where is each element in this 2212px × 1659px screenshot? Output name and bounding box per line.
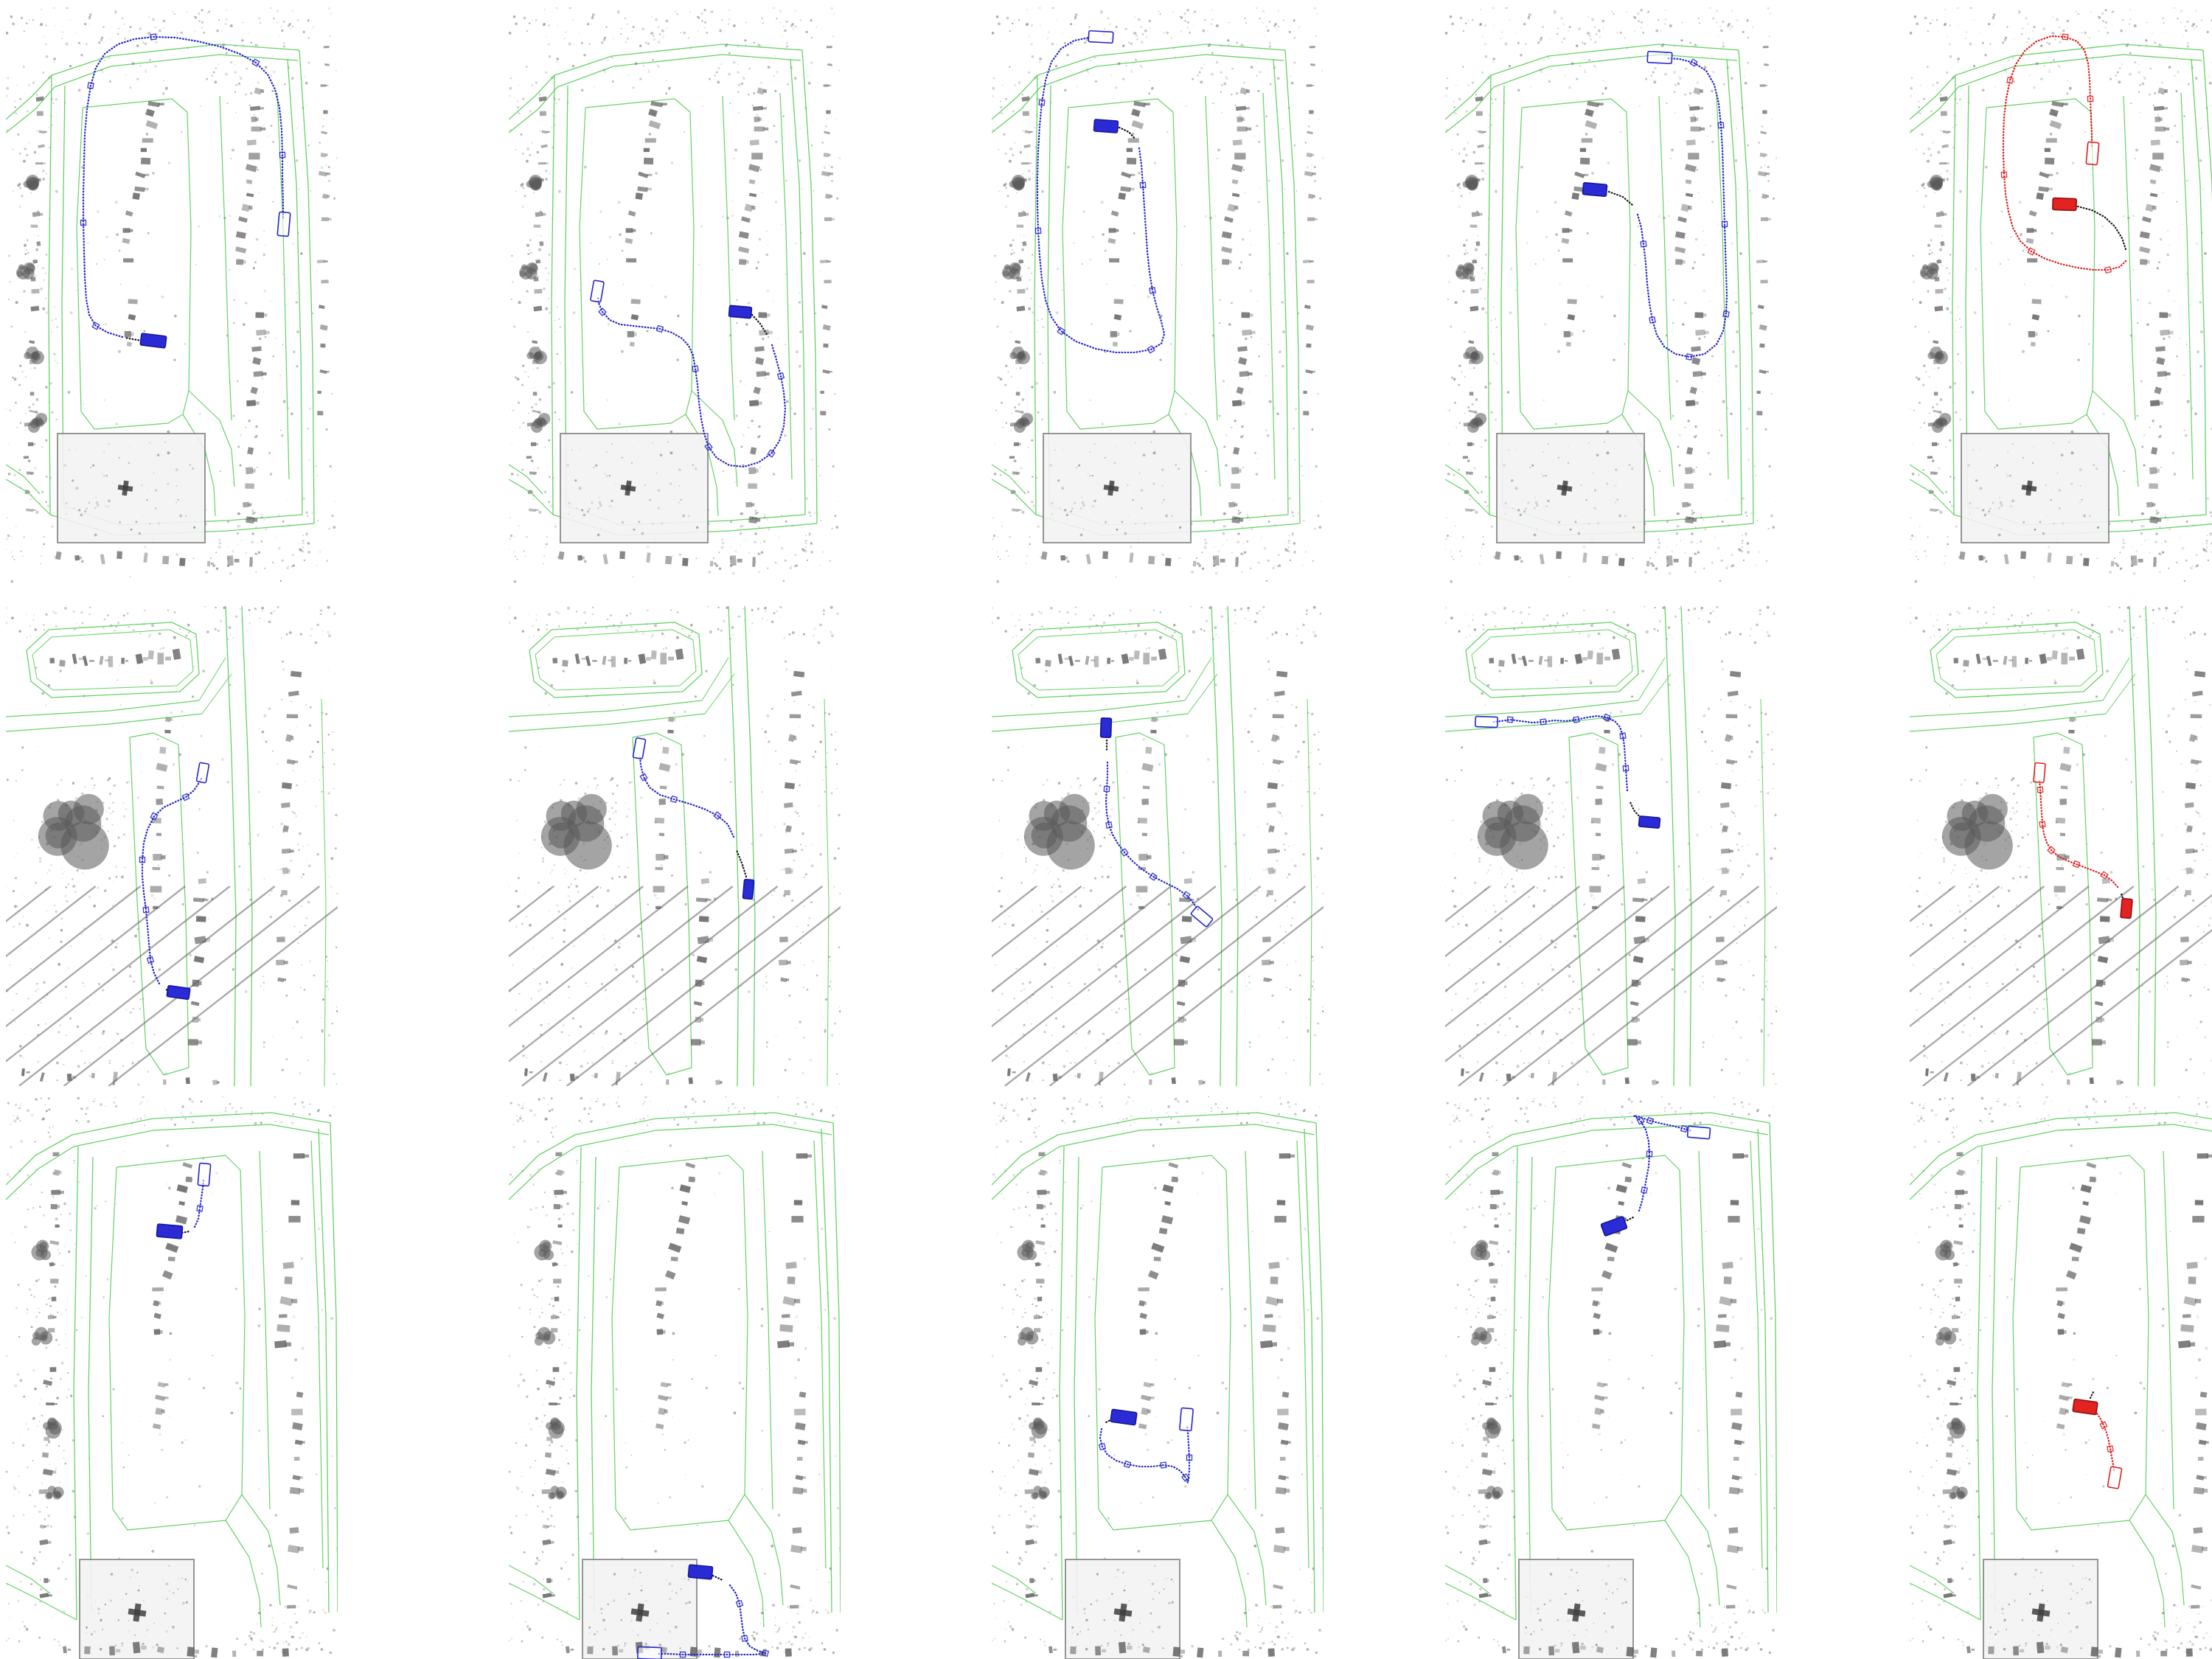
map-noise-dot	[742, 434, 745, 437]
map-car-blob	[1691, 357, 1700, 365]
map-car-blob	[1761, 218, 1768, 221]
map-noise-dot	[1255, 7, 1257, 9]
map-noise-dot	[1704, 336, 1705, 338]
map-noise-dot	[529, 249, 530, 251]
map-noise-dot	[1613, 13, 1615, 15]
map-noise-dot	[1941, 235, 1942, 236]
map-noise-dot	[1318, 119, 1320, 120]
map-noise-dot	[1254, 452, 1256, 454]
map-noise-dot	[1688, 517, 1691, 519]
map-noise-dot	[1703, 254, 1705, 256]
map-noise-dot	[6, 549, 7, 550]
map-noise-dot	[49, 966, 49, 967]
map-noise-dot	[1292, 105, 1293, 106]
map-noise-dot	[249, 614, 251, 616]
map-car-blob	[824, 131, 830, 135]
map-car-blob	[1236, 386, 1243, 394]
map-car-blob	[1023, 111, 1029, 116]
map-car-blob	[42, 163, 46, 164]
map-noise-dot	[206, 78, 208, 80]
map-noise-dot	[2157, 512, 2159, 513]
map-car-blob	[44, 131, 47, 133]
map-noise-dot	[32, 82, 35, 84]
map-noise-dot	[26, 924, 29, 927]
map-noise-dot	[1495, 389, 1495, 389]
map-car-blob	[1472, 509, 1475, 511]
map-noise-dot	[178, 499, 179, 501]
map-car-blob	[2115, 563, 2118, 564]
map-noise-dot	[538, 276, 540, 277]
map-noise-dot	[1077, 86, 1078, 88]
map-noise-dot	[35, 248, 38, 251]
map-noise-dot	[262, 731, 265, 734]
map-noise-dot	[1951, 57, 1952, 58]
map-noise-dot	[64, 871, 65, 872]
map-car-blob	[824, 84, 829, 87]
map-noise-dot	[237, 380, 239, 383]
map-noise-dot	[1674, 428, 1675, 429]
map-noise-dot	[60, 780, 61, 781]
map-noise-dot	[1958, 25, 1959, 27]
map-car-blob	[1312, 85, 1315, 86]
map-noise-dot	[32, 403, 35, 406]
map-noise-dot	[2200, 128, 2202, 129]
map-noise-dot	[1625, 378, 1626, 378]
map-noise-dot	[2089, 38, 2090, 39]
map-noise-dot	[118, 837, 120, 839]
map-noise-dot	[548, 24, 549, 26]
map-noise-dot	[128, 782, 130, 783]
map-noise-dot	[192, 557, 194, 559]
map-noise-dot	[243, 323, 246, 326]
map-noise-dot	[1493, 25, 1495, 27]
map-car-blob	[1470, 289, 1478, 293]
map-noise-dot	[1604, 442, 1605, 443]
map-car-blob	[749, 179, 756, 184]
map-noise-dot	[13, 820, 15, 821]
map-noise-dot	[172, 636, 173, 637]
map-noise-dot	[1231, 302, 1234, 305]
map-noise-dot	[61, 38, 63, 39]
map-noise-dot	[80, 611, 83, 613]
map-noise-dot	[2057, 473, 2059, 474]
map-noise-dot	[1451, 23, 1454, 26]
map-car-blob	[74, 555, 80, 561]
map-noise-dot	[2139, 428, 2140, 429]
map-car-blob	[1936, 212, 1944, 218]
map-noise-dot	[1458, 183, 1461, 186]
map-noise-dot	[710, 13, 711, 13]
map-noise-dot	[218, 546, 221, 549]
map-noise-dot	[1722, 521, 1724, 523]
map-noise-dot	[2135, 149, 2138, 152]
map-noise-dot	[328, 734, 330, 736]
map-noise-dot	[1558, 521, 1560, 524]
map-noise-dot	[2168, 568, 2169, 569]
map-noise-dot	[2042, 532, 2045, 535]
map-car-blob	[737, 559, 742, 563]
map-noise-dot	[1310, 118, 1311, 119]
map-noise-dot	[11, 536, 13, 538]
map-noise-dot	[709, 422, 709, 423]
map-car-blob	[1131, 108, 1141, 116]
map-noise-dot	[1464, 376, 1466, 378]
map-noise-dot	[161, 296, 164, 299]
map-noise-dot	[1754, 465, 1756, 467]
map-noise-dot	[1593, 65, 1595, 66]
map-noise-dot	[2157, 511, 2157, 512]
map-car-blob	[1148, 556, 1155, 565]
map-noise-dot	[55, 98, 58, 100]
map-noise-dot	[1631, 467, 1633, 470]
map-noise-dot	[1543, 259, 1545, 260]
map-noise-dot	[330, 886, 332, 888]
map-noise-dot	[1249, 290, 1252, 293]
map-noise-dot	[2135, 158, 2136, 159]
map-noise-dot	[1473, 467, 1476, 470]
map-noise-dot	[328, 634, 331, 637]
map-noise-dot	[30, 968, 32, 970]
map-noise-dot	[1029, 36, 1029, 37]
map-noise-dot	[304, 560, 305, 561]
map-noise-dot	[1240, 261, 1242, 263]
map-noise-dot	[60, 929, 63, 932]
map-noise-dot	[155, 41, 158, 44]
map-noise-dot	[1020, 151, 1022, 153]
map-noise-dot	[1090, 259, 1091, 260]
map-noise-dot	[1709, 301, 1710, 302]
map-noise-dot	[35, 882, 37, 884]
map-noise-dot	[1928, 252, 1929, 253]
map-car-blob	[1759, 369, 1766, 374]
map-noise-dot	[809, 105, 810, 106]
map-noise-dot	[1486, 57, 1487, 58]
map-noise-dot	[185, 515, 187, 518]
map-noise-dot	[280, 430, 282, 431]
map-noise-dot	[1576, 45, 1578, 47]
map-noise-dot	[142, 42, 144, 44]
map-car-blob	[1222, 259, 1229, 265]
map-noise-dot	[2174, 125, 2176, 127]
map-noise-dot	[234, 91, 236, 93]
map-noise-dot	[639, 45, 641, 47]
map-noise-dot	[1934, 192, 1935, 194]
map-car-blob	[1306, 344, 1311, 348]
map-car-blob	[31, 225, 38, 228]
map-noise-dot	[819, 565, 820, 566]
map-noise-dot	[133, 629, 135, 631]
map-noise-dot	[678, 502, 680, 504]
map-noise-dot	[1287, 549, 1290, 552]
map-noise-dot	[1691, 532, 1694, 535]
map-noise-dot	[1012, 239, 1015, 241]
map-noise-dot	[319, 552, 321, 553]
map-noise-dot	[280, 637, 282, 639]
map-noise-dot	[1001, 301, 1004, 304]
map-noise-dot	[805, 540, 807, 542]
map-noise-dot	[539, 173, 540, 175]
map-car-blob	[198, 1018, 201, 1022]
map-car-blob	[1562, 258, 1573, 262]
map-noise-dot	[1984, 54, 1986, 56]
map-noise-dot	[66, 7, 69, 9]
map-noise-dot	[1278, 554, 1280, 556]
map-noise-dot	[283, 42, 285, 44]
map-noise-dot	[58, 963, 60, 966]
map-noise-dot	[1581, 484, 1582, 486]
map-noise-dot	[14, 101, 15, 102]
map-noise-dot	[1021, 276, 1023, 277]
map-noise-dot	[1658, 539, 1660, 541]
map-car-blob	[1116, 333, 1120, 336]
panel-r1c4	[1445, 7, 1777, 586]
map-car-blob	[1764, 154, 1767, 156]
map-noise-dot	[1456, 153, 1457, 153]
map-noise-dot	[1187, 9, 1189, 11]
map-noise-dot	[74, 891, 77, 893]
map-noise-dot	[777, 563, 778, 564]
map-noise-dot	[555, 7, 558, 9]
map-noise-dot	[2103, 165, 2104, 166]
map-noise-dot	[1216, 24, 1219, 27]
map-car-blob	[635, 192, 643, 200]
map-car-blob	[145, 108, 155, 116]
map-noise-dot	[272, 355, 274, 358]
map-noise-dot	[198, 226, 199, 227]
lane-line	[242, 606, 252, 1086]
map-car-blob	[322, 194, 328, 199]
map-car-blob	[320, 344, 325, 348]
map-noise-dot	[781, 514, 783, 516]
map-noise-dot	[1282, 128, 1284, 129]
map-noise-dot	[10, 1019, 12, 1020]
map-car-blob	[821, 305, 828, 309]
map-noise-dot	[9, 964, 10, 966]
map-noise-dot	[2161, 169, 2163, 170]
map-car-blob	[1930, 471, 1938, 474]
map-noise-dot	[2060, 33, 2062, 35]
map-noise-dot	[56, 1062, 59, 1065]
map-noise-dot	[1216, 61, 1218, 63]
map-noise-dot	[2034, 26, 2036, 28]
map-noise-dot	[42, 547, 43, 548]
map-noise-dot	[1037, 331, 1038, 333]
map-noise-dot	[263, 290, 266, 293]
map-noise-dot	[1547, 500, 1550, 503]
map-noise-dot	[94, 785, 95, 786]
map-noise-dot	[310, 627, 313, 630]
map-noise-dot	[335, 847, 337, 849]
map-noise-dot	[779, 10, 782, 13]
map-noise-dot	[117, 1033, 119, 1034]
map-noise-dot	[79, 284, 80, 285]
map-noise-dot	[48, 869, 50, 872]
map-noise-dot	[2154, 424, 2154, 425]
map-noise-dot	[558, 360, 560, 361]
map-noise-dot	[588, 508, 591, 510]
map-noise-dot	[6, 95, 8, 97]
map-noise-dot	[167, 451, 170, 454]
map-car-blob	[290, 849, 294, 852]
map-car-blob	[1307, 218, 1315, 221]
map-tree-blob	[1463, 262, 1475, 274]
map-noise-dot	[1115, 447, 1116, 448]
map-noise-dot	[1197, 75, 1199, 77]
map-noise-dot	[246, 631, 248, 633]
map-noise-dot	[1236, 92, 1238, 94]
map-noise-dot	[1615, 502, 1616, 504]
map-car-blob	[1568, 314, 1576, 321]
map-car-blob	[1304, 171, 1313, 177]
map-noise-dot	[255, 425, 257, 428]
map-car-blob	[2026, 238, 2034, 244]
map-noise-dot	[2132, 215, 2135, 217]
map-car-blob	[30, 392, 35, 395]
map-noise-dot	[92, 465, 94, 467]
map-noise-dot	[1678, 525, 1680, 527]
map-noise-dot	[1207, 30, 1208, 32]
map-tree-blob	[1465, 177, 1478, 190]
map-noise-dot	[518, 112, 520, 114]
map-noise-dot	[741, 83, 743, 85]
map-noise-dot	[1154, 161, 1156, 164]
map-noise-dot	[1554, 201, 1557, 204]
map-car-blob	[545, 163, 549, 164]
map-noise-dot	[795, 564, 798, 567]
map-noise-dot	[220, 470, 221, 472]
map-noise-dot	[55, 419, 58, 421]
map-car-blob	[1238, 469, 1242, 473]
map-noise-dot	[1192, 422, 1192, 423]
map-noise-dot	[239, 525, 241, 527]
map-noise-dot	[599, 501, 602, 504]
map-noise-dot	[1217, 481, 1219, 483]
map-noise-dot	[767, 519, 768, 520]
map-noise-dot	[218, 215, 221, 218]
map-car-blob	[633, 333, 637, 336]
map-noise-dot	[1641, 9, 1643, 11]
map-noise-dot	[754, 540, 757, 543]
map-noise-dot	[245, 519, 246, 521]
map-car-blob	[2157, 518, 2161, 522]
map-noise-dot	[58, 1031, 60, 1033]
map-noise-dot	[225, 73, 228, 76]
map-noise-dot	[125, 1009, 127, 1010]
map-noise-dot	[1078, 465, 1080, 467]
map-noise-dot	[1679, 77, 1681, 80]
map-noise-dot	[1620, 131, 1621, 133]
map-noise-dot	[1102, 423, 1104, 425]
map-noise-dot	[7, 87, 10, 90]
map-noise-dot	[328, 180, 330, 182]
map-noise-dot	[1240, 436, 1243, 439]
map-noise-dot	[2079, 553, 2082, 556]
map-noise-dot	[1486, 496, 1488, 498]
map-car-blob	[1481, 163, 1485, 164]
map-noise-dot	[768, 336, 769, 338]
map-noise-dot	[136, 78, 139, 80]
map-noise-dot	[1939, 81, 1940, 82]
map-noise-dot	[80, 860, 81, 862]
map-noise-dot	[1273, 499, 1274, 501]
map-car-blob	[32, 443, 35, 445]
map-noise-dot	[1487, 127, 1489, 128]
map-car-blob	[1237, 346, 1248, 352]
map-noise-dot	[121, 875, 124, 878]
map-car-blob	[1688, 503, 1691, 506]
map-car-blob	[281, 890, 287, 895]
map-noise-dot	[1025, 503, 1026, 504]
lane-line	[1980, 99, 2095, 429]
map-noise-dot	[331, 393, 333, 394]
map-noise-dot	[1707, 136, 1708, 137]
map-car-blob	[161, 855, 165, 859]
map-noise-dot	[1181, 264, 1183, 265]
map-noise-dot	[1459, 422, 1461, 424]
map-noise-dot	[1918, 101, 1919, 102]
map-noise-dot	[272, 751, 274, 752]
map-noise-dot	[207, 13, 208, 13]
map-noise-dot	[1256, 63, 1257, 63]
map-noise-dot	[607, 60, 609, 62]
map-noise-dot	[1029, 465, 1031, 467]
map-noise-dot	[1067, 166, 1070, 169]
map-noise-dot	[1545, 475, 1547, 476]
map-car-blob	[823, 344, 828, 348]
map-noise-dot	[84, 510, 86, 512]
map-noise-dot	[297, 844, 299, 845]
map-noise-dot	[546, 465, 548, 467]
map-noise-dot	[1302, 565, 1303, 566]
map-noise-dot	[1196, 557, 1197, 559]
map-noise-dot	[734, 149, 737, 152]
map-noise-dot	[38, 989, 39, 990]
map-noise-dot	[1529, 467, 1531, 468]
map-noise-dot	[605, 473, 605, 474]
map-noise-dot	[1284, 543, 1284, 544]
map-noise-dot	[2142, 242, 2143, 243]
map-noise-dot	[2029, 74, 2031, 76]
map-noise-dot	[1946, 307, 1949, 310]
map-noise-dot	[275, 338, 276, 340]
map-noise-dot	[1452, 191, 1453, 192]
map-noise-dot	[37, 746, 38, 747]
map-noise-dot	[1930, 111, 1933, 113]
map-noise-dot	[296, 159, 299, 162]
map-noise-dot	[292, 564, 295, 567]
map-noise-dot	[786, 45, 789, 48]
map-car-blob	[558, 552, 564, 560]
map-noise-dot	[1204, 19, 1206, 21]
map-noise-dot	[815, 21, 815, 21]
map-noise-dot	[1503, 464, 1506, 467]
map-noise-dot	[94, 507, 97, 509]
map-noise-dot	[1051, 43, 1054, 46]
map-noise-dot	[278, 514, 280, 516]
map-noise-dot	[1750, 512, 1753, 515]
map-noise-dot	[214, 628, 215, 629]
map-noise-dot	[2201, 19, 2202, 21]
map-noise-dot	[1928, 331, 1930, 333]
map-tree-blob	[26, 177, 39, 190]
map-noise-dot	[1645, 422, 1646, 423]
map-noise-dot	[771, 136, 772, 137]
map-noise-dot	[81, 793, 83, 795]
map-car-blob	[824, 218, 832, 221]
map-noise-dot	[538, 511, 541, 514]
map-car-blob	[2083, 557, 2090, 566]
map-noise-dot	[44, 788, 45, 789]
